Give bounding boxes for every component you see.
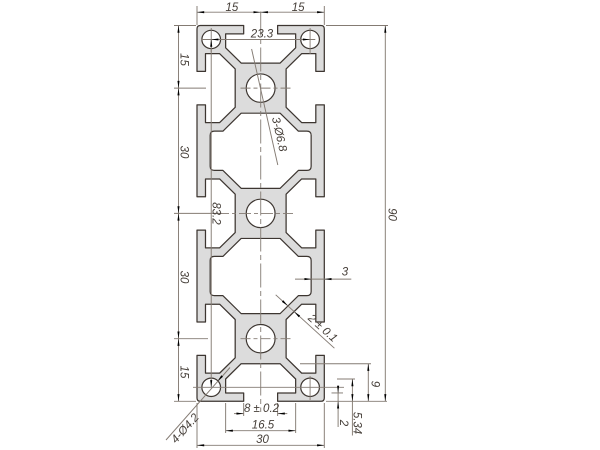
- svg-text:90: 90: [385, 208, 397, 221]
- svg-text:23.3: 23.3: [250, 28, 274, 40]
- svg-text:2: 2: [337, 419, 349, 427]
- svg-text:8 ± 0.2: 8 ± 0.2: [244, 403, 280, 415]
- svg-text:3: 3: [342, 267, 349, 279]
- svg-text:9: 9: [368, 381, 380, 388]
- svg-text:30: 30: [178, 146, 190, 159]
- svg-text:5.34: 5.34: [351, 412, 363, 434]
- svg-text:30: 30: [178, 271, 190, 284]
- svg-text:15: 15: [226, 2, 239, 14]
- svg-text:15: 15: [292, 2, 305, 14]
- svg-text:16.5: 16.5: [252, 420, 275, 432]
- svg-text:15: 15: [178, 366, 190, 379]
- svg-text:30: 30: [256, 434, 269, 446]
- svg-text:15: 15: [178, 53, 190, 66]
- svg-text:83.2: 83.2: [210, 202, 222, 225]
